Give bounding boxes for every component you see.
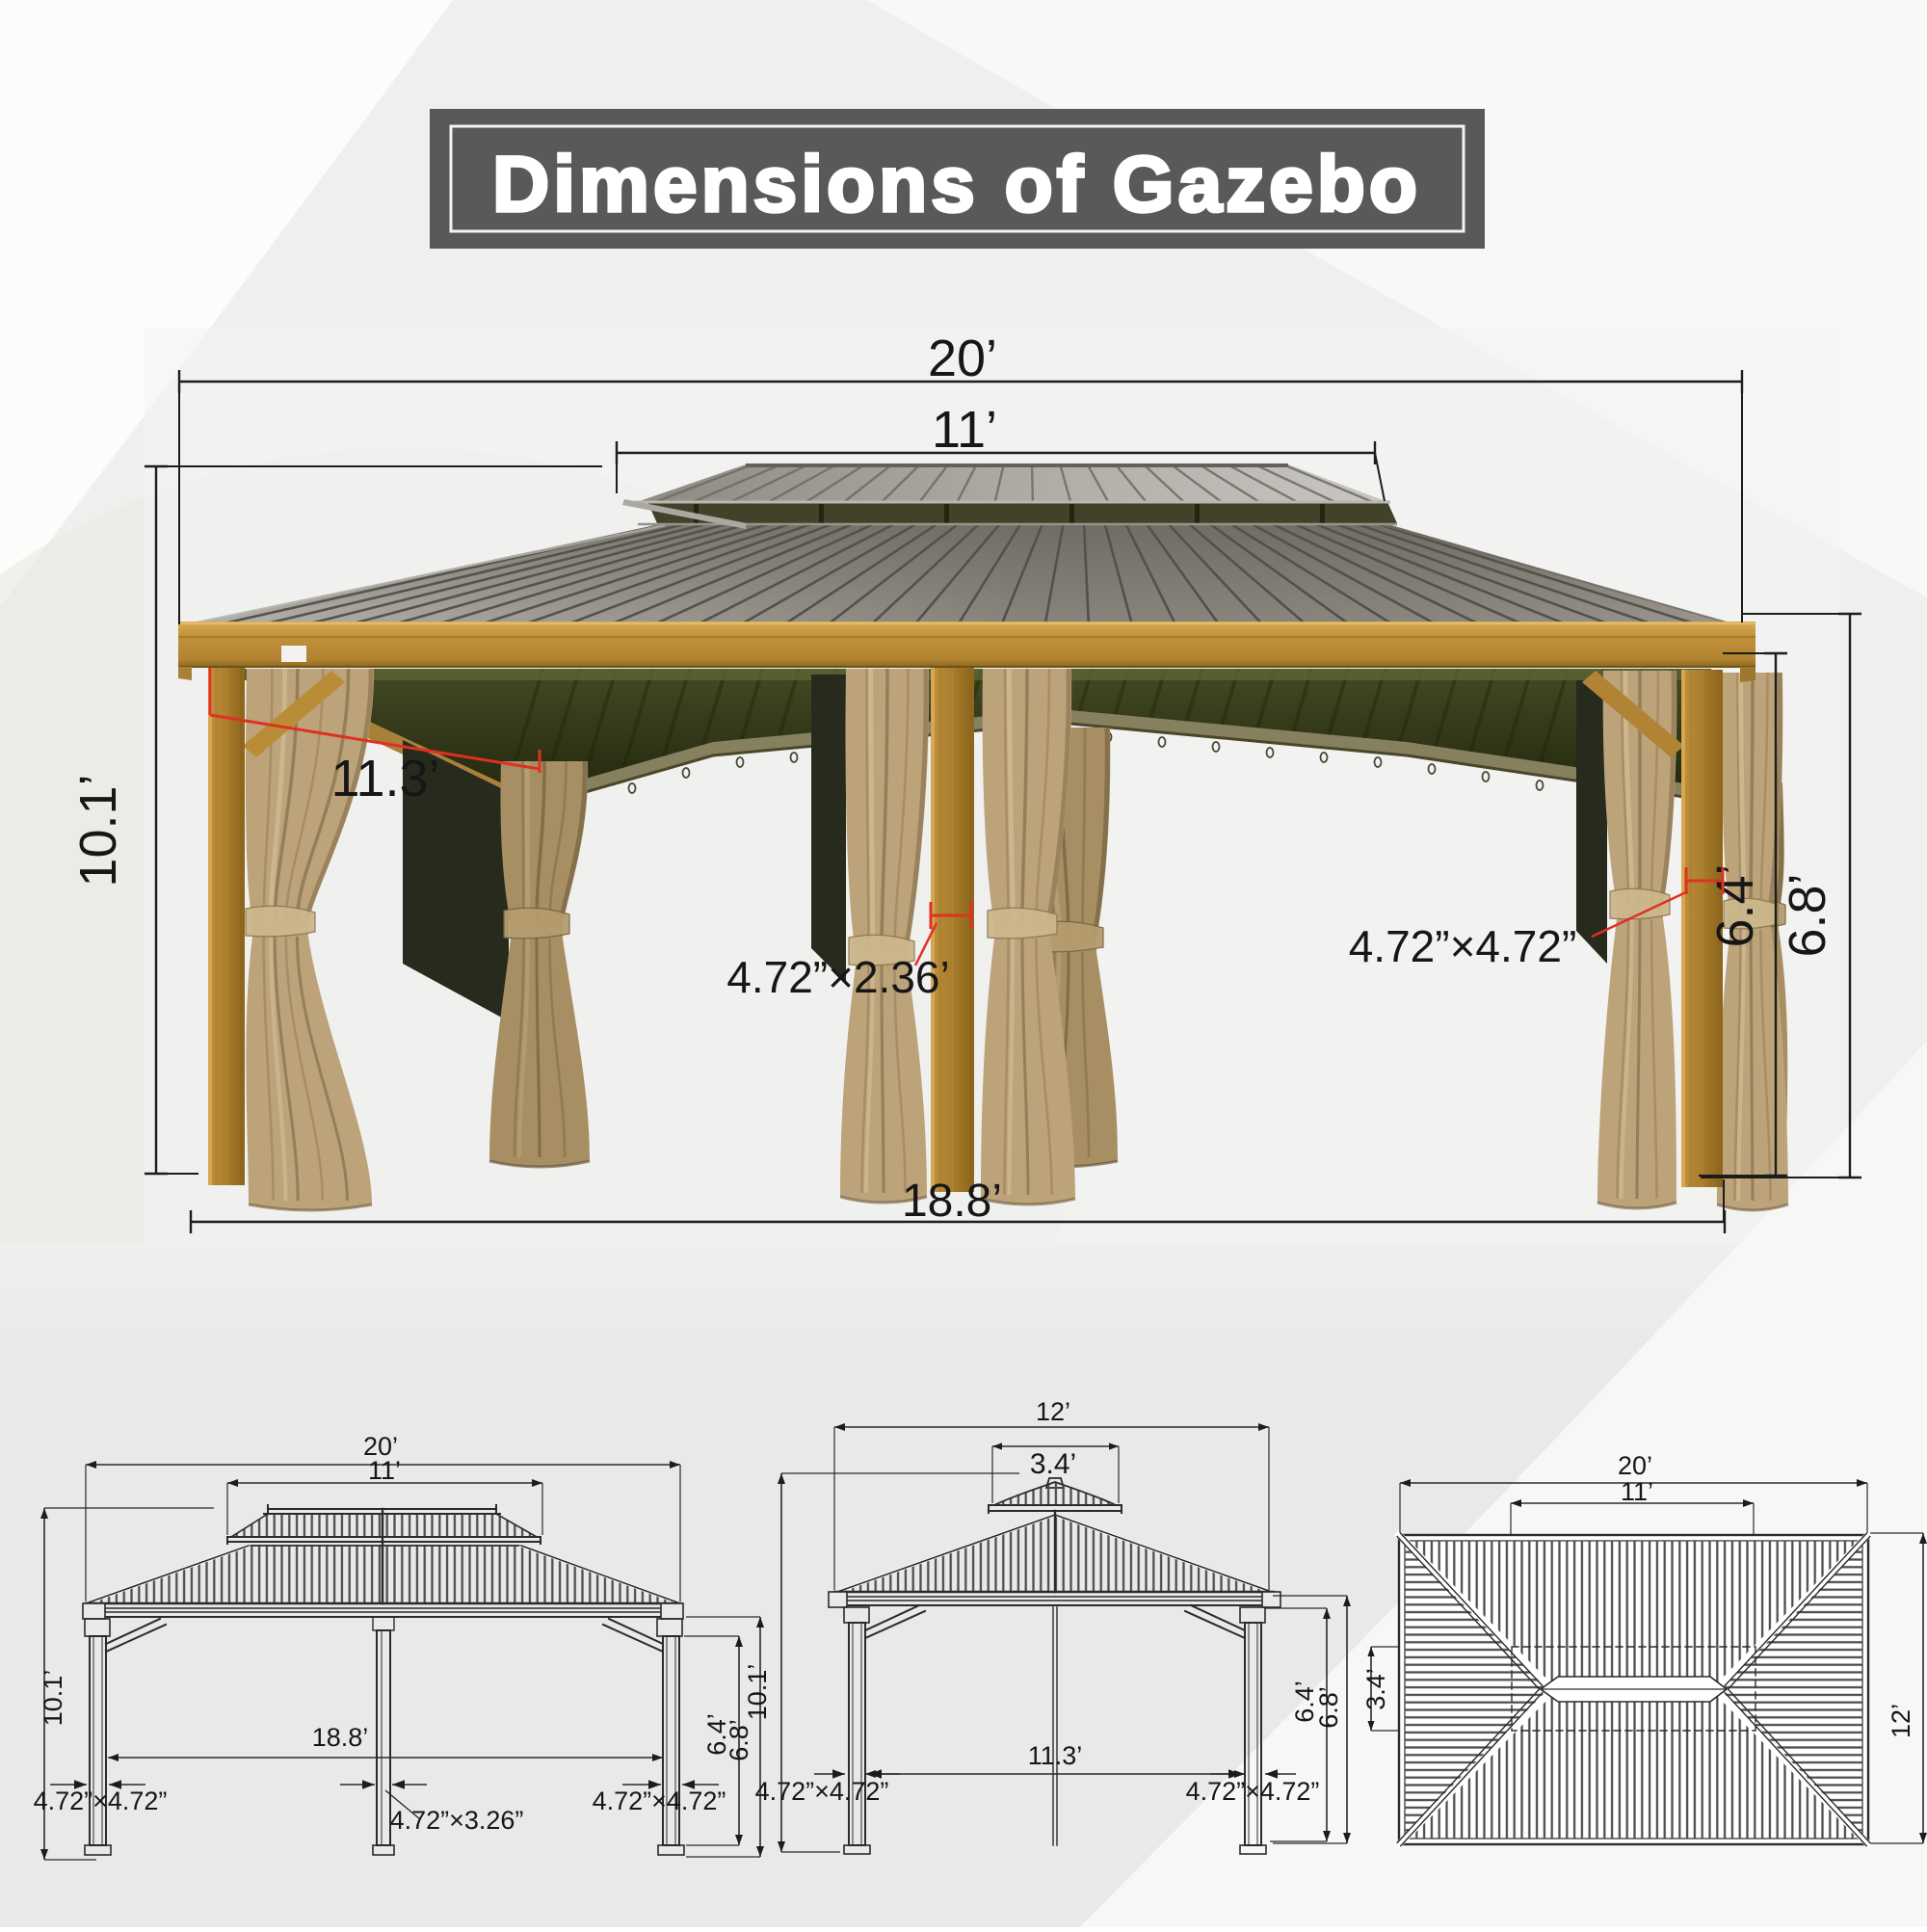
svg-text:4.72”×4.72”: 4.72”×4.72” [593, 1786, 726, 1815]
svg-text:4.72”×4.72”: 4.72”×4.72” [1186, 1777, 1320, 1806]
svg-text:11’: 11’ [932, 401, 997, 459]
svg-text:18.8’: 18.8’ [902, 1176, 1002, 1227]
svg-text:6.8’: 6.8’ [725, 1719, 753, 1761]
svg-text:11’: 11’ [368, 1456, 401, 1485]
svg-text:20’: 20’ [1618, 1451, 1652, 1480]
svg-text:18.8’: 18.8’ [312, 1723, 369, 1752]
svg-text:4.72”×2.36’: 4.72”×2.36’ [726, 952, 949, 1002]
svg-text:6.8’: 6.8’ [1779, 873, 1836, 957]
svg-text:4.72”×4.72”: 4.72”×4.72” [34, 1786, 168, 1815]
svg-text:10.1’: 10.1’ [39, 1670, 67, 1727]
svg-text:3.4’: 3.4’ [1361, 1668, 1390, 1710]
svg-text:11.3’: 11.3’ [1028, 1741, 1083, 1770]
svg-text:20’: 20’ [928, 330, 997, 387]
svg-text:Dimensions of Gazebo: Dimensions of Gazebo [492, 141, 1421, 228]
svg-text:4.72”×3.26”: 4.72”×3.26” [390, 1806, 524, 1835]
svg-text:6.8’: 6.8’ [1314, 1686, 1343, 1729]
svg-text:6.4’: 6.4’ [1706, 863, 1764, 947]
svg-text:12’: 12’ [1036, 1397, 1070, 1426]
svg-text:12’: 12’ [1887, 1704, 1915, 1738]
svg-text:4.72”×4.72”: 4.72”×4.72” [1349, 921, 1577, 971]
svg-text:3.4’: 3.4’ [1030, 1448, 1076, 1480]
svg-text:11.3’: 11.3’ [330, 750, 439, 807]
svg-text:10.1’: 10.1’ [69, 774, 127, 887]
svg-text:4.72”×4.72”: 4.72”×4.72” [755, 1777, 889, 1806]
svg-text:10.1’: 10.1’ [743, 1664, 772, 1721]
svg-text:11’: 11’ [1621, 1477, 1653, 1506]
